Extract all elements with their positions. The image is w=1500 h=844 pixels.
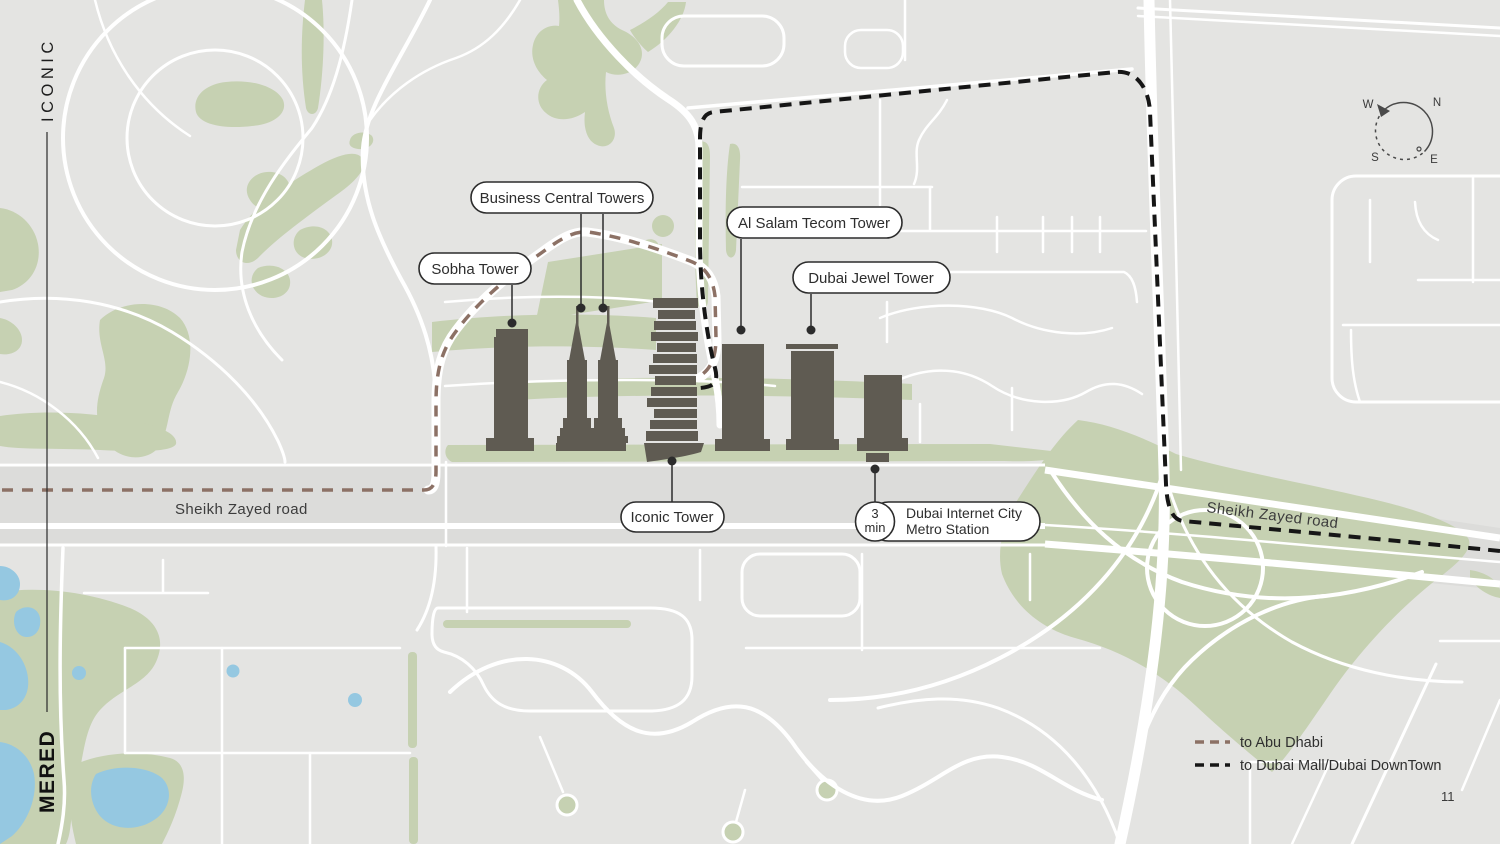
tower-jewel-part	[791, 351, 834, 439]
water-areas-part	[348, 693, 362, 707]
tower-iconic-part	[653, 354, 697, 363]
tower-iconic-part	[647, 398, 697, 407]
tower-iconic-part	[646, 431, 698, 441]
towers-business-central-part	[591, 428, 625, 436]
tower-sobha-part	[486, 438, 534, 451]
brochure-map-page: Business Central Towers Sobha Tower Al S…	[0, 0, 1500, 844]
label-pill-jewel: Dubai Jewel Tower	[793, 262, 950, 293]
tower-al-salam-part	[722, 344, 764, 439]
green-areas-part	[408, 652, 417, 748]
water-areas-part	[227, 665, 240, 678]
towers-business-central-part	[560, 428, 594, 436]
pill-text-sobha: Sobha Tower	[431, 261, 518, 278]
tower-iconic-part	[654, 409, 697, 418]
green-areas-part	[652, 215, 674, 237]
tower-sobha-part	[496, 329, 528, 337]
tower-al-salam	[715, 344, 770, 451]
label-pill-metro-station: 3 min Dubai Internet City Metro Station	[856, 502, 1041, 541]
towers-business-central-part	[567, 360, 587, 418]
compass-north: N	[1433, 97, 1441, 109]
water-areas-part	[72, 666, 86, 680]
tower-jewel-part	[786, 439, 839, 450]
tower-iconic-part	[655, 376, 696, 385]
towers-business-central-part	[594, 418, 622, 428]
tower-jewel	[786, 344, 839, 450]
page-number: 11	[1441, 789, 1455, 804]
tower-iconic-part	[651, 332, 698, 341]
green-areas-part	[443, 620, 631, 628]
pill-text-iconic: Iconic Tower	[630, 509, 713, 526]
metro-time-unit: min	[865, 520, 886, 535]
pill-text-al-salam: Al Salam Tecom Tower	[738, 215, 890, 232]
pill-text-business-central: Business Central Towers	[480, 190, 645, 207]
leader-dots-part	[599, 304, 608, 313]
leader-dots-part	[577, 304, 586, 313]
tower-metro-site-part	[866, 453, 889, 462]
towers-business-central-part	[563, 418, 591, 428]
tower-sobha-part	[494, 337, 528, 438]
leader-dots-part	[508, 319, 517, 328]
tower-iconic-part	[658, 310, 695, 319]
tower-iconic-part	[650, 420, 697, 429]
legend-label-abu-dhabi: to Abu Dhabi	[1240, 735, 1323, 751]
label-pill-al-salam: Al Salam Tecom Tower	[727, 207, 902, 238]
brand-logo-mered: MERED	[36, 730, 59, 813]
label-pill-business-central: Business Central Towers	[471, 182, 653, 213]
tower-iconic-part	[651, 387, 697, 396]
leader-dots-part	[737, 326, 746, 335]
leader-dots-part	[668, 457, 677, 466]
compass-south: S	[1371, 152, 1379, 164]
leader-dots-part	[807, 326, 816, 335]
tower-metro-site-part	[857, 438, 908, 451]
label-pill-iconic: Iconic Tower	[621, 502, 724, 532]
green-areas-part	[409, 757, 418, 844]
location-map: Business Central Towers Sobha Tower Al S…	[0, 0, 1500, 844]
metro-name-line1: Dubai Internet City	[906, 505, 1022, 521]
tower-al-salam-part	[715, 439, 770, 451]
tower-jewel-part	[786, 344, 838, 349]
towers-business-central-part	[556, 443, 592, 451]
metro-name-line2: Metro Station	[906, 521, 989, 537]
tower-iconic-part	[649, 365, 697, 374]
road-label-sheikh-zayed-west: Sheikh Zayed road	[175, 501, 308, 518]
compass-east: E	[1430, 154, 1438, 166]
leader-dots-part	[871, 465, 880, 474]
label-pill-sobha: Sobha Tower	[419, 253, 531, 284]
tower-iconic-part	[653, 298, 698, 308]
water-areas-part	[14, 607, 40, 637]
legend-label-dubai-mall: to Dubai Mall/Dubai DownTown	[1240, 758, 1442, 774]
pill-text-jewel: Dubai Jewel Tower	[808, 270, 934, 287]
towers-business-central-part	[590, 443, 626, 451]
tower-metro-site	[857, 375, 908, 462]
metro-time-value: 3	[871, 506, 878, 521]
brand-logo-iconic: ICONIC	[39, 37, 57, 122]
towers-business-central-part	[588, 436, 628, 443]
tower-iconic-part	[657, 343, 696, 352]
tower-iconic-part	[654, 321, 696, 330]
towers-business-central-part	[598, 360, 618, 418]
tower-metro-site-part	[864, 375, 902, 438]
compass-west: W	[1363, 99, 1374, 111]
